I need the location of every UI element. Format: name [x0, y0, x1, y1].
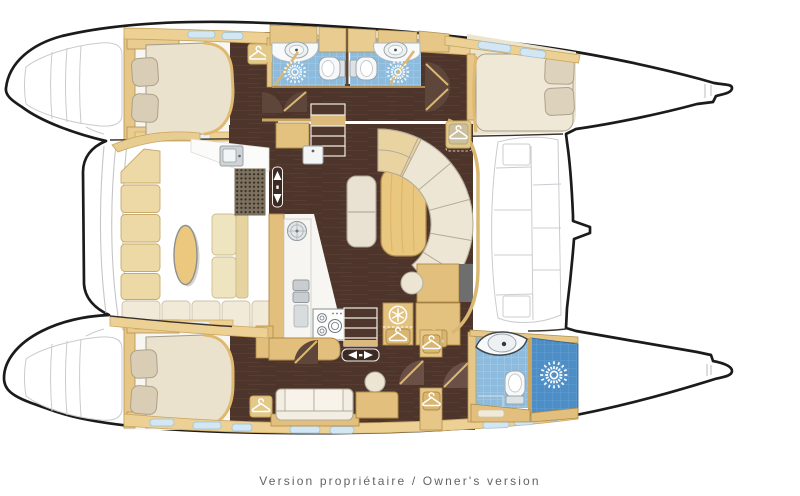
svg-text:Version propriétaire / Owner's: Version propriétaire / Owner's version — [259, 474, 540, 488]
